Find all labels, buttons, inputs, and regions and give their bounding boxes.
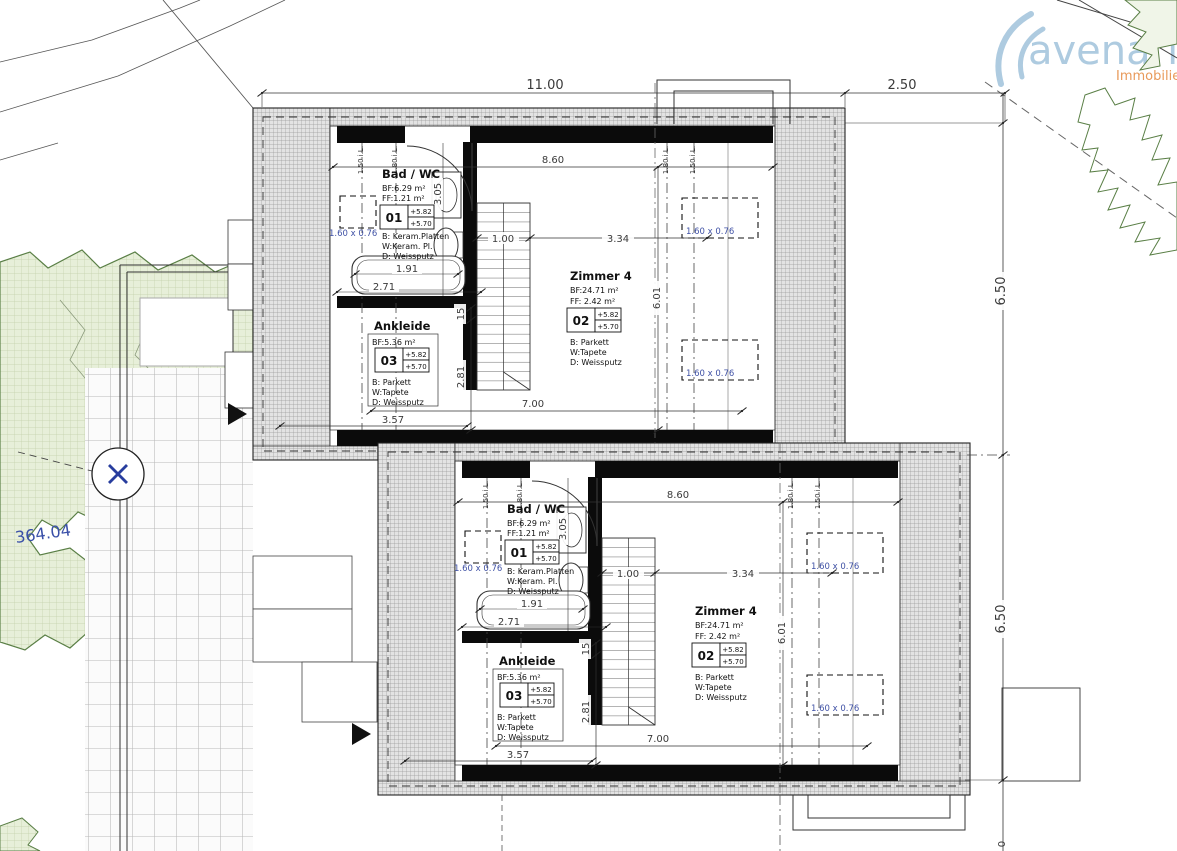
- roofline-150-label-right: 1.50 i.L.: [689, 146, 697, 174]
- room-walls-zimmer: W:Tapete: [570, 348, 607, 357]
- room-tag-zimmer: 02: [573, 314, 590, 328]
- roofline-180-label-right: 1.80 i.L.: [662, 146, 670, 174]
- room-level-bottom-bad: +5.70: [410, 220, 431, 228]
- dim-overall-width: 11.00: [526, 78, 563, 93]
- room-walls-ankleide: W:Tapete: [372, 388, 409, 397]
- dim-stair-width: 1.00: [492, 234, 514, 245]
- room-block-ankleide: Ankleide BF:5.36 m² 03 +5.82 +5.70 B: Pa…: [368, 319, 438, 407]
- dim-tub-length: 1.91: [396, 264, 418, 275]
- room-ceiling-ankleide: D: Weissputz: [372, 398, 424, 407]
- terrace-lower-unit: [253, 556, 377, 722]
- terrain-contours: [0, 0, 285, 160]
- room-name-bad: Bad / WC: [382, 167, 440, 181]
- bathtub: [352, 256, 465, 294]
- room-tag-bad: 01: [386, 211, 403, 225]
- dim-zimmer-depth: 6.01: [652, 287, 663, 309]
- room-area2-zimmer: FF: 2.42 m²: [570, 297, 615, 306]
- room-level-bottom-ankleide: +5.70: [405, 363, 426, 371]
- dim-depth-upper: 6.50: [994, 277, 1009, 306]
- room-floor-ankleide: B: Parkett: [372, 378, 411, 387]
- logo-subtitle-text: Immobilien: [1116, 69, 1177, 84]
- stairs: [477, 203, 530, 390]
- below-unit-extension-lines: [502, 795, 780, 851]
- room-floor-zimmer: B: Parkett: [570, 338, 609, 347]
- tree-canopy-bottom-left: [0, 818, 40, 851]
- terrace-panel: [140, 298, 233, 366]
- skylight-size-label-right-bottom: 1.60 x 0.76: [686, 369, 734, 379]
- neighbor-structure: [1002, 688, 1080, 781]
- room-area-bad: BF:6.29 m²: [382, 184, 426, 193]
- room-level-bottom-zimmer: +5.70: [597, 323, 618, 331]
- unit-upper: 1.50 i.L. 1.80 i.L. 1.80 i.L. 1.50 i.L.: [253, 108, 845, 460]
- dim-depth-lower: 6.50: [994, 605, 1009, 634]
- dim-zimmer-width: 3.34: [607, 234, 629, 245]
- bad-ankleide-wall: [337, 296, 463, 308]
- dormer-bottom: [793, 795, 965, 830]
- entrance-arrow-lower-icon: [352, 723, 371, 745]
- room-tag-ankleide: 03: [381, 354, 398, 368]
- room-area2-bad: FF:1.21 m²: [382, 194, 425, 203]
- unit-lower: [378, 443, 970, 795]
- patio-tiles: [85, 368, 253, 851]
- dim-bad-width: 2.71: [373, 282, 395, 293]
- dim-bottom-partial: 3.57: [382, 415, 404, 426]
- room-level-top-bad: +5.82: [410, 208, 431, 216]
- dim-bottom-width: 7.00: [522, 399, 544, 410]
- dim-interior-width: 8.60: [542, 155, 564, 166]
- room-area-zimmer: BF:24.71 m²: [570, 286, 619, 295]
- skylight-box-left: [340, 196, 376, 228]
- dim-ankleide-depth: 2.81: [456, 366, 467, 388]
- room-ceiling-bad: D: Weissputz: [382, 252, 434, 261]
- room-level-top-zimmer: +5.82: [597, 311, 618, 319]
- dim-wall-thickness: 15: [456, 308, 467, 321]
- floor-plan-page: avenaris Immobilien: [0, 0, 1177, 851]
- dim-bad-depth: 3.05: [433, 183, 444, 205]
- room-walls-bad: W:Keram. Pl.: [382, 242, 433, 251]
- room-area-ankleide: BF:5.36 m²: [372, 338, 416, 347]
- room-name-ankleide: Ankleide: [374, 319, 431, 333]
- skylight-size-label-left: 1.60 x 0.76: [329, 229, 377, 239]
- room-level-top-ankleide: +5.82: [405, 351, 426, 359]
- roofline-150-label: 1.50 i.L.: [357, 146, 365, 174]
- room-ceiling-zimmer: D: Weissputz: [570, 358, 622, 367]
- room-name-zimmer: Zimmer 4: [570, 269, 632, 283]
- room-block-zimmer: Zimmer 4 BF:24.71 m² FF: 2.42 m² 02 +5.8…: [567, 269, 632, 367]
- dim-side-offset: 2.50: [888, 78, 917, 93]
- room-floor-bad: B: Keram.Platten: [382, 232, 449, 241]
- dim-cut-bottom: 0: [997, 841, 1008, 847]
